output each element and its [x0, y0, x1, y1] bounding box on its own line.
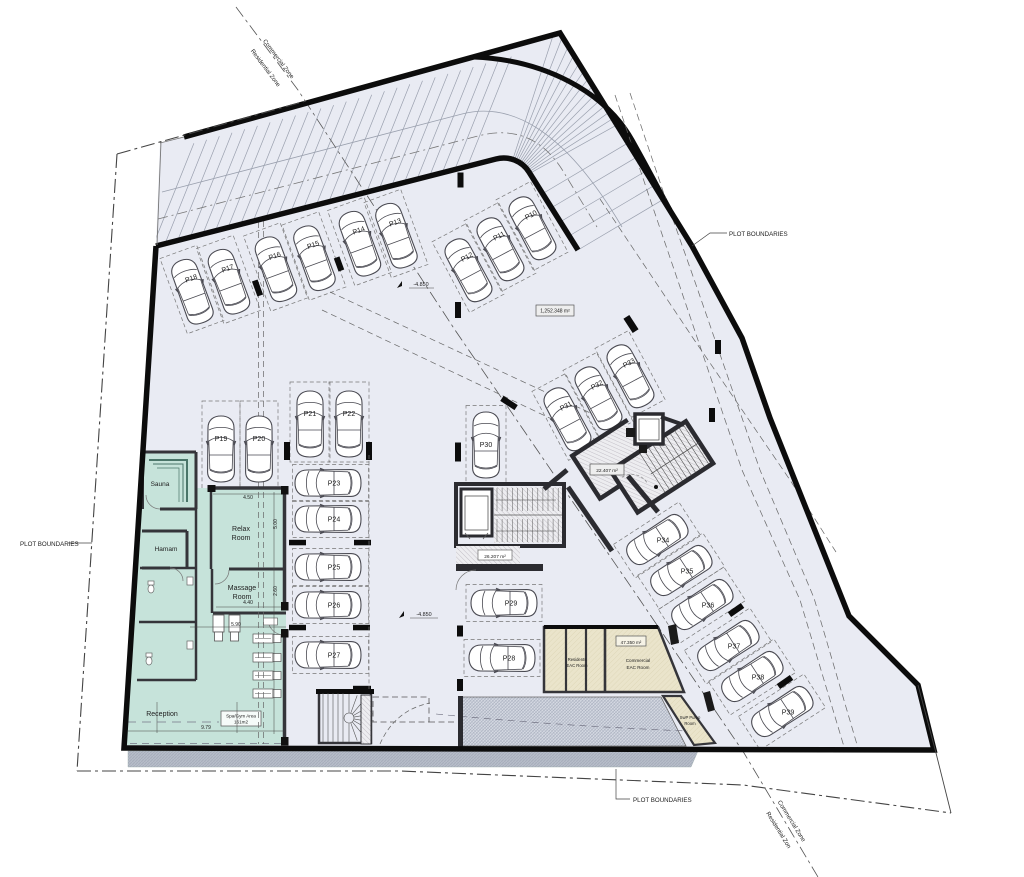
svg-text:P25: P25 [328, 565, 341, 572]
svg-text:4.40: 4.40 [243, 600, 253, 606]
svg-text:P38: P38 [752, 675, 765, 682]
svg-text:161m2: 161m2 [234, 720, 248, 725]
svg-text:4.50: 4.50 [243, 495, 253, 501]
svg-text:47.350 m²: 47.350 m² [621, 640, 642, 645]
svg-text:-4.850: -4.850 [416, 612, 431, 618]
svg-text:Massage: Massage [228, 585, 257, 592]
svg-text:P30: P30 [480, 442, 493, 449]
svg-text:-4.850: -4.850 [413, 282, 428, 288]
svg-text:Room: Room [232, 535, 251, 542]
svg-text:Hamam: Hamam [155, 546, 178, 553]
svg-text:EAC Room: EAC Room [567, 663, 588, 668]
svg-text:P27: P27 [328, 653, 341, 660]
svg-text:P21: P21 [304, 411, 317, 418]
svg-text:P35: P35 [681, 569, 694, 576]
svg-text:P24: P24 [328, 517, 341, 524]
svg-text:P19: P19 [215, 436, 228, 443]
svg-text:Reception: Reception [146, 711, 178, 718]
svg-text:9.79: 9.79 [201, 725, 211, 731]
svg-text:PLOT BOUNDARIES: PLOT BOUNDARIES [729, 231, 788, 238]
svg-text:P34: P34 [657, 538, 670, 545]
svg-text:P28: P28 [503, 656, 516, 663]
svg-text:EAC Room: EAC Room [627, 665, 650, 670]
svg-text:P22: P22 [343, 411, 356, 418]
svg-text:P29: P29 [505, 601, 518, 608]
svg-text:1,252.348 m²: 1,252.348 m² [540, 309, 570, 315]
svg-text:P20: P20 [253, 436, 266, 443]
svg-text:Relax: Relax [232, 526, 250, 533]
svg-text:Residents: Residents [568, 657, 587, 662]
svg-text:P37: P37 [728, 644, 741, 651]
svg-text:22.407 m²: 22.407 m² [596, 468, 618, 474]
svg-text:P26: P26 [328, 603, 341, 610]
svg-text:Commercial: Commercial [626, 658, 651, 663]
svg-text:P36: P36 [702, 603, 715, 610]
svg-text:PLOT BOUNDARIES: PLOT BOUNDARIES [20, 541, 79, 548]
svg-text:Room: Room [684, 721, 696, 726]
svg-text:Sauna: Sauna [151, 481, 170, 488]
svg-text:26.207 m²: 26.207 m² [484, 554, 506, 560]
svg-text:SwP Pump: SwP Pump [680, 715, 701, 720]
svg-text:P39: P39 [782, 710, 795, 717]
svg-text:PLOT BOUNDARIES: PLOT BOUNDARIES [633, 797, 692, 804]
svg-text:Spa/Gym Area: Spa/Gym Area [226, 714, 256, 719]
svg-text:P23: P23 [328, 481, 341, 488]
